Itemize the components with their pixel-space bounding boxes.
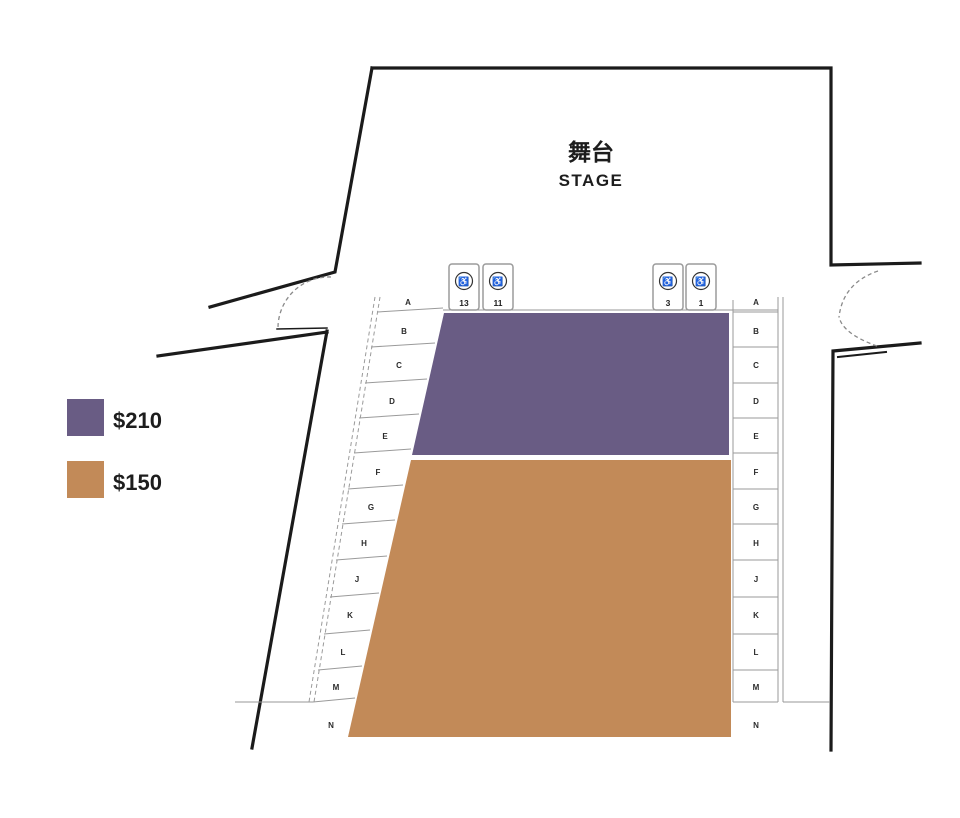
seating-chart: A B C D E F G H J K L M N A B C D E F G … bbox=[0, 0, 960, 818]
accessible-seat-11[interactable]: ♿ 11 bbox=[483, 264, 513, 310]
row-label: C bbox=[396, 361, 402, 370]
row-label: F bbox=[754, 468, 759, 477]
wheelchair-icon: ♿ bbox=[695, 276, 706, 287]
legend-item-210: $210 bbox=[67, 399, 162, 436]
legend-swatch-210 bbox=[67, 399, 104, 436]
row-label: M bbox=[753, 683, 760, 692]
row-label: K bbox=[753, 611, 759, 620]
row-line bbox=[359, 414, 419, 418]
row-label: M bbox=[333, 683, 340, 692]
left-exit-lower-wall-inner bbox=[277, 328, 327, 329]
row-label-column-right bbox=[733, 297, 783, 702]
row-line bbox=[348, 485, 403, 489]
row-label: K bbox=[347, 611, 353, 620]
stage-title-en: STAGE bbox=[559, 171, 624, 190]
row-label: B bbox=[753, 327, 759, 336]
accessible-seat-1[interactable]: ♿ 1 bbox=[686, 264, 716, 310]
row-label: C bbox=[753, 361, 759, 370]
row-labels-right: A B C D E F G H J K L M N bbox=[753, 298, 760, 730]
seat-number: 1 bbox=[699, 298, 704, 308]
row-line bbox=[330, 593, 379, 597]
row-label: B bbox=[401, 327, 407, 336]
right-door-swing-arc-bottom bbox=[839, 317, 877, 346]
row-label: A bbox=[753, 298, 759, 307]
row-line bbox=[342, 520, 395, 524]
row-label: N bbox=[328, 721, 334, 730]
row-line bbox=[365, 379, 427, 383]
row-line bbox=[318, 666, 362, 670]
stage-area: 舞台 STAGE bbox=[559, 139, 624, 190]
wheelchair-icon: ♿ bbox=[492, 276, 503, 287]
row-label: E bbox=[753, 432, 759, 441]
stage-wall-left bbox=[210, 68, 372, 307]
row-label: J bbox=[355, 575, 359, 584]
row-label: G bbox=[368, 503, 374, 512]
seat-number: 11 bbox=[494, 298, 503, 308]
row-line bbox=[313, 698, 355, 702]
row-label: G bbox=[753, 503, 759, 512]
row-label: D bbox=[753, 397, 759, 406]
row-line bbox=[371, 343, 435, 347]
section-front-210[interactable] bbox=[412, 313, 729, 455]
row-label: A bbox=[405, 298, 411, 307]
stage-wall-top-right bbox=[372, 68, 920, 265]
seat-number: 3 bbox=[666, 298, 671, 308]
accessible-seats: ♿ 13 ♿ 11 ♿ 3 ♿ 1 bbox=[449, 264, 716, 310]
seat-number: 13 bbox=[459, 298, 469, 308]
row-label: L bbox=[754, 648, 759, 657]
row-label: D bbox=[389, 397, 395, 406]
accessible-seat-13[interactable]: ♿ 13 bbox=[449, 264, 479, 310]
left-inner-wall bbox=[252, 331, 327, 748]
row-label: H bbox=[753, 539, 759, 548]
section-rear-150[interactable] bbox=[348, 460, 731, 737]
seating-chart-page: A B C D E F G H J K L M N A B C D E F G … bbox=[0, 0, 960, 818]
legend-item-150: $150 bbox=[67, 461, 162, 498]
row-line bbox=[354, 449, 411, 453]
row-label: J bbox=[754, 575, 758, 584]
left-aisle-edge-outer bbox=[309, 297, 375, 702]
stage-title-zh: 舞台 bbox=[568, 139, 614, 165]
row-label: N bbox=[753, 721, 759, 730]
legend-price-150: $150 bbox=[113, 470, 162, 495]
row-line bbox=[324, 630, 370, 634]
row-label: H bbox=[361, 539, 367, 548]
row-label: E bbox=[382, 432, 388, 441]
row-label: F bbox=[376, 468, 381, 477]
legend-swatch-150 bbox=[67, 461, 104, 498]
right-door-swing-arc-top bbox=[839, 271, 878, 317]
left-exit-lower-wall bbox=[158, 332, 327, 356]
accessible-seat-3[interactable]: ♿ 3 bbox=[653, 264, 683, 310]
right-lower-wall-inner bbox=[838, 352, 886, 357]
wheelchair-icon: ♿ bbox=[458, 276, 469, 287]
right-lower-wall bbox=[831, 343, 920, 750]
legend-price-210: $210 bbox=[113, 408, 162, 433]
wheelchair-icon: ♿ bbox=[662, 276, 673, 287]
row-line bbox=[336, 556, 387, 560]
row-label: L bbox=[341, 648, 346, 657]
price-legend: $210 $150 bbox=[67, 399, 162, 498]
row-line bbox=[377, 308, 443, 312]
